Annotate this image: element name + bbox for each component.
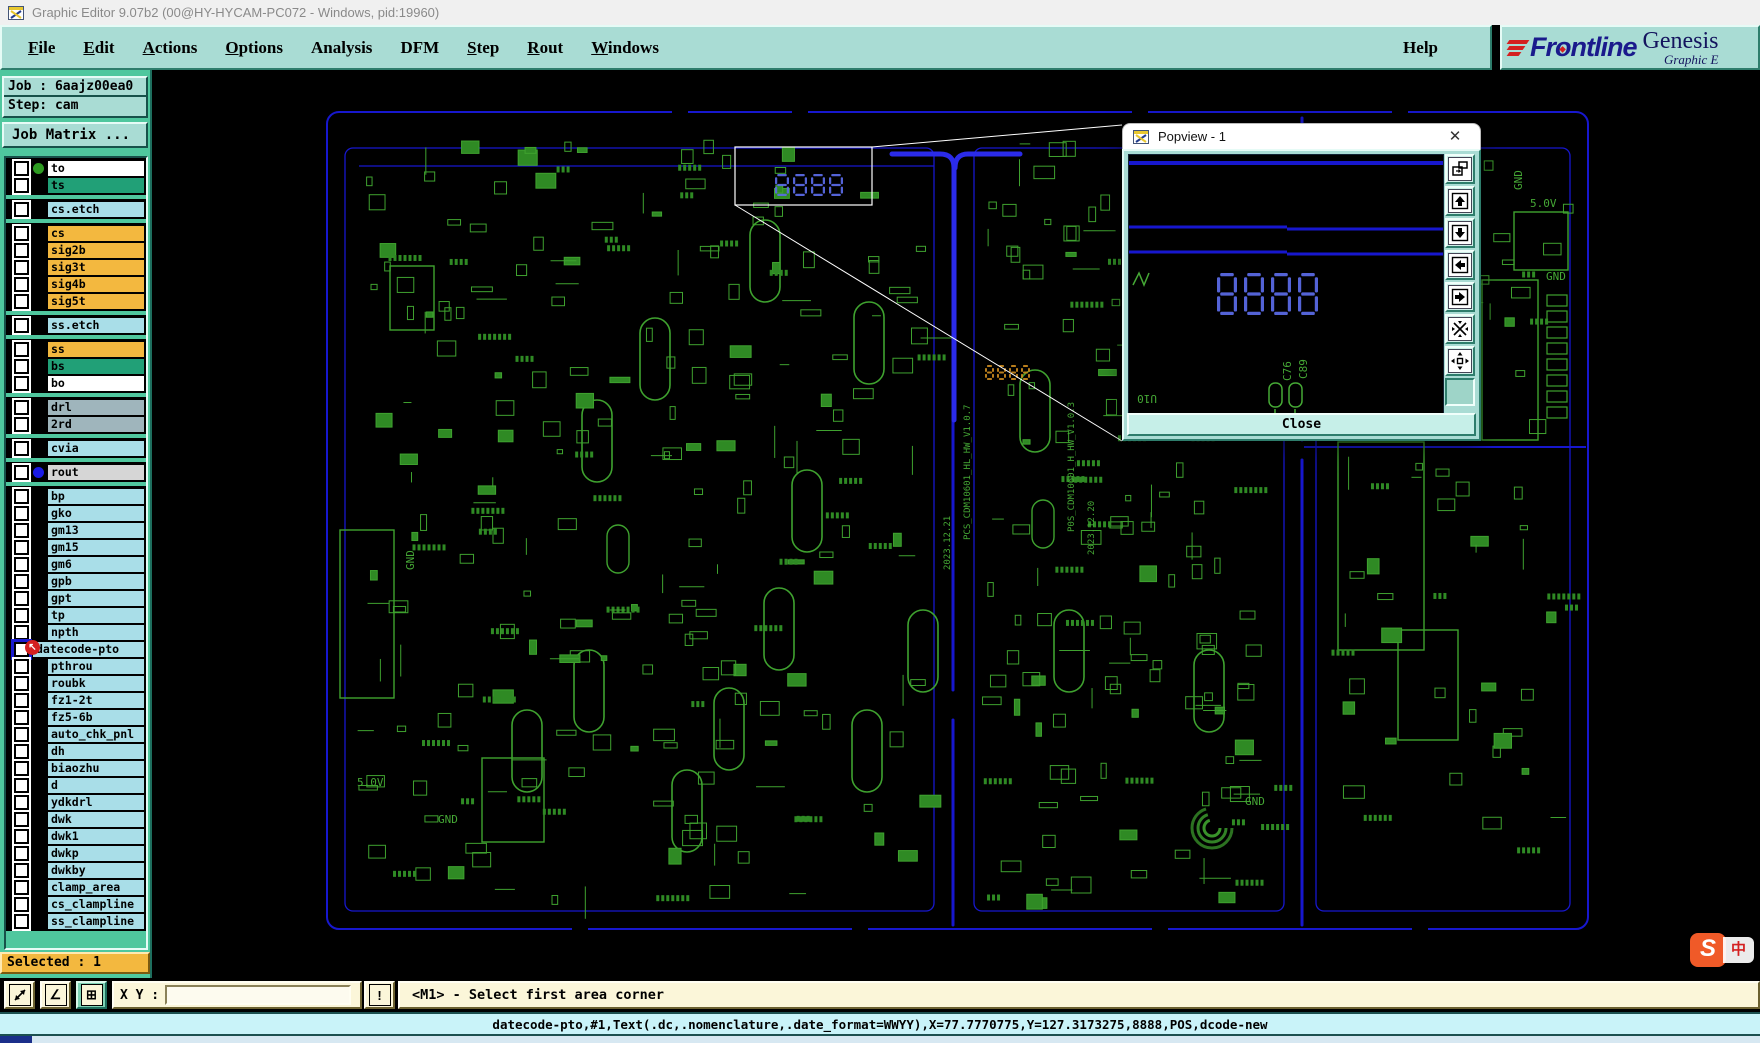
move-left-icon bbox=[1448, 253, 1472, 277]
layer-name: cs bbox=[48, 226, 144, 241]
bottom-toolbar: ∠ ⊞ X Y : ! <M1> - Select first area cor… bbox=[0, 978, 1760, 1012]
layer-name: dwkby bbox=[48, 863, 144, 878]
layer-visibility-checkbox[interactable] bbox=[14, 359, 29, 374]
layer-row-sig3t[interactable]: sig3t bbox=[8, 259, 144, 275]
layer-visibility-checkbox[interactable] bbox=[14, 659, 29, 674]
layer-visibility-checkbox[interactable] bbox=[14, 260, 29, 275]
layer-name: bp bbox=[48, 489, 144, 504]
layer-row-gko[interactable]: gko bbox=[8, 505, 144, 521]
silkscreen-label: GND bbox=[404, 550, 417, 570]
layer-visibility-checkbox[interactable] bbox=[14, 608, 29, 623]
job-panel: Job : 6aajz00ea0 Step: cam bbox=[2, 76, 148, 118]
selection-highlight bbox=[735, 125, 1122, 441]
silkscreen-label: GND bbox=[438, 813, 458, 826]
layer-name: ss_clampline bbox=[48, 914, 144, 929]
popview-toolbar-spacer bbox=[1445, 378, 1475, 406]
layer-name: gm15 bbox=[48, 540, 144, 555]
layer-visibility-checkbox[interactable] bbox=[14, 591, 29, 606]
layer-visibility-checkbox[interactable] bbox=[14, 489, 29, 504]
layer-row-bs[interactable]: bs bbox=[8, 358, 144, 374]
layer-group: bpgkogm13gm15gm6gpbgpttpnpth↖datecode-pt… bbox=[6, 486, 146, 931]
layer-name: fz1-2t bbox=[48, 693, 144, 708]
layer-list: totscs.etchcssig2bsig3tsig4bsig5tss.etch… bbox=[4, 156, 148, 950]
layer-visibility-checkbox[interactable] bbox=[14, 226, 29, 241]
app-icon bbox=[8, 6, 24, 20]
layer-name: bo bbox=[48, 376, 144, 391]
layer-name: sig3t bbox=[48, 260, 144, 275]
status-prompt-panel: <M1> - Select first area corner bbox=[398, 981, 1760, 1009]
layer-visibility-checkbox[interactable] bbox=[14, 294, 29, 309]
layer-visibility-checkbox[interactable] bbox=[14, 178, 29, 193]
layer-visibility-checkbox[interactable] bbox=[14, 557, 29, 572]
layer-name: rout bbox=[48, 465, 144, 480]
pcb-canvas[interactable]: 5.0VGNDGNDGNDGND5.0VGND2023.12.21PCS_CDM… bbox=[152, 70, 1760, 978]
brand-company: Fro◆ntline bbox=[1530, 32, 1637, 63]
layer-visibility-checkbox[interactable] bbox=[14, 376, 29, 391]
command-result-bar: datecode-pto,#1,Text(.dc,.nomenclature,.… bbox=[0, 1012, 1760, 1036]
layer-name: ts bbox=[48, 178, 144, 193]
fit-view-icon bbox=[1448, 317, 1472, 341]
layer-name: sig4b bbox=[48, 277, 144, 292]
new-popview-button[interactable] bbox=[1445, 154, 1475, 184]
ime-indicator[interactable]: S 中 bbox=[1690, 933, 1754, 967]
layer-visibility-checkbox[interactable] bbox=[14, 676, 29, 691]
move-right-icon bbox=[1448, 285, 1472, 309]
menu-rout[interactable]: Rout bbox=[515, 34, 575, 62]
layer-visibility-checkbox[interactable] bbox=[14, 761, 29, 776]
pan-view-icon bbox=[1448, 349, 1472, 373]
layer-row-bo[interactable]: bo bbox=[8, 375, 144, 391]
popview-dialog: Popview - 1 ✕ C89C76U10 Close bbox=[1122, 123, 1481, 441]
layer-name: bs bbox=[48, 359, 144, 374]
layer-visibility-checkbox[interactable] bbox=[14, 880, 29, 895]
layer-visibility-checkbox[interactable] bbox=[14, 744, 29, 759]
layer-name: gko bbox=[48, 506, 144, 521]
layer-name: tp bbox=[48, 608, 144, 623]
fit-view-button[interactable] bbox=[1445, 314, 1475, 344]
command-result-text: datecode-pto,#1,Text(.dc,.nomenclature,.… bbox=[492, 1017, 1267, 1032]
new-popview-icon bbox=[1448, 157, 1472, 181]
layer-name: cs.etch bbox=[48, 202, 144, 217]
layer-visibility-checkbox[interactable] bbox=[14, 342, 29, 357]
layer-row-npth[interactable]: npth bbox=[8, 624, 144, 640]
frontline-speedlines-icon bbox=[1508, 38, 1528, 58]
layer-row-d[interactable]: d bbox=[8, 777, 144, 793]
layer-row-gm6[interactable]: gm6 bbox=[8, 556, 144, 572]
sogou-icon: S bbox=[1690, 933, 1726, 967]
title-bar: Graphic Editor 9.07b2 (00@HY-HYCAM-PC072… bbox=[0, 0, 1760, 25]
layer-visibility-checkbox[interactable] bbox=[14, 318, 29, 333]
layer-row-dh[interactable]: dh bbox=[8, 743, 144, 759]
menu-file[interactable]: File bbox=[16, 34, 67, 62]
active-layer-cursor-icon: ↖ bbox=[25, 640, 40, 655]
popview-silk-text: C76 bbox=[1281, 361, 1294, 381]
selected-count-badge: Selected : 1 bbox=[0, 952, 150, 974]
move-up-button[interactable] bbox=[1445, 186, 1475, 216]
ime-language-badge: 中 bbox=[1723, 937, 1754, 963]
layer-row-cs_clampline[interactable]: cs_clampline bbox=[8, 896, 144, 912]
menu-actions[interactable]: Actions bbox=[131, 34, 210, 62]
layer-row-dwkp[interactable]: dwkp bbox=[8, 845, 144, 861]
panel-version-text: 2023.12.20 bbox=[1087, 501, 1097, 555]
layer-visibility-checkbox[interactable] bbox=[14, 778, 29, 793]
popview-silk-text: C89 bbox=[1297, 359, 1310, 379]
layer-name: sig5t bbox=[48, 294, 144, 309]
layer-visibility-checkbox[interactable] bbox=[14, 506, 29, 521]
layer-row-dwk1[interactable]: dwk1 bbox=[8, 828, 144, 844]
layer-visibility-checkbox[interactable] bbox=[14, 277, 29, 292]
silkscreen-label: GND bbox=[1546, 270, 1566, 283]
layer-row-dwkby[interactable]: dwkby bbox=[8, 862, 144, 878]
layer-row-sig4b[interactable]: sig4b bbox=[8, 276, 144, 292]
layer-name: clamp_area bbox=[48, 880, 144, 895]
layer-name: gpt bbox=[48, 591, 144, 606]
diagonal-arrow-icon bbox=[9, 984, 31, 1006]
layer-visibility-checkbox[interactable] bbox=[14, 914, 29, 929]
layer-visibility-checkbox[interactable] bbox=[14, 400, 29, 415]
layer-visibility-checkbox[interactable] bbox=[14, 710, 29, 725]
angle-tool-button[interactable]: ∠ bbox=[40, 981, 71, 1009]
grid-icon: ⊞ bbox=[81, 984, 103, 1006]
sidebar: Job : 6aajz00ea0 Step: cam Job Matrix ..… bbox=[0, 70, 152, 978]
layer-row-cs.etch[interactable]: cs.etch bbox=[8, 201, 144, 217]
layer-color-dot bbox=[33, 467, 44, 478]
layer-name: gm13 bbox=[48, 523, 144, 538]
layer-visibility-checkbox[interactable] bbox=[14, 540, 29, 555]
layer-visibility-checkbox[interactable] bbox=[14, 202, 29, 217]
bottom-edge-strip bbox=[0, 1036, 1760, 1043]
layer-row-rout[interactable]: rout bbox=[8, 464, 144, 480]
layer-group: cvia bbox=[6, 438, 146, 458]
job-matrix-button[interactable]: Job Matrix ... bbox=[2, 122, 148, 148]
layer-group: cssig2bsig3tsig4bsig5t bbox=[6, 223, 146, 311]
layer-name: gpb bbox=[48, 574, 144, 589]
menu-windows[interactable]: Windows bbox=[579, 34, 671, 62]
menu-step[interactable]: Step bbox=[455, 34, 511, 62]
layer-visibility-checkbox[interactable] bbox=[14, 829, 29, 844]
layer-row-cvia[interactable]: cvia bbox=[8, 440, 144, 456]
layer-visibility-checkbox[interactable] bbox=[14, 897, 29, 912]
layer-row-biaozhu[interactable]: biaozhu bbox=[8, 760, 144, 776]
popview-title-bar[interactable]: Popview - 1 ✕ bbox=[1122, 123, 1481, 149]
layer-row-pthrou[interactable]: pthrou bbox=[8, 658, 144, 674]
layer-visibility-checkbox[interactable] bbox=[14, 574, 29, 589]
popview-close-button[interactable]: Close bbox=[1127, 413, 1476, 436]
popview-toolbar bbox=[1444, 154, 1477, 413]
brand-product: Genesis bbox=[1643, 28, 1719, 54]
brand-panel: Fro◆ntline Genesis Graphic E bbox=[1500, 25, 1760, 70]
pan-view-button[interactable] bbox=[1445, 346, 1475, 376]
menu-bar: FileEditActionsOptionsAnalysisDFMStepRou… bbox=[0, 25, 1492, 70]
layer-name: to bbox=[48, 161, 144, 176]
panel-version-text: PCS_CDM10601_HL_HW_V1.0.7 bbox=[963, 405, 973, 540]
layer-row-sig5t[interactable]: sig5t bbox=[8, 293, 144, 309]
layer-name: cvia bbox=[48, 441, 144, 456]
silkscreen-label: GND bbox=[1512, 170, 1525, 190]
layer-visibility-checkbox[interactable] bbox=[14, 417, 29, 432]
menu-help[interactable]: Help bbox=[1391, 34, 1450, 62]
popview-body: C89C76U10 Close bbox=[1122, 149, 1481, 441]
layer-row-cs[interactable]: cs bbox=[8, 225, 144, 241]
seven-segment-display bbox=[985, 365, 1030, 380]
silkscreen-label: 5.0V bbox=[357, 776, 384, 789]
seven-segment-display bbox=[1217, 273, 1318, 315]
move-right-button[interactable] bbox=[1445, 282, 1475, 312]
layer-visibility-checkbox[interactable] bbox=[14, 465, 29, 480]
measure-tool-button[interactable] bbox=[4, 981, 35, 1009]
layer-row-gm13[interactable]: gm13 bbox=[8, 522, 144, 538]
xy-input[interactable] bbox=[165, 985, 351, 1005]
move-down-icon bbox=[1448, 221, 1472, 245]
popview-drawing: C89C76U10 bbox=[1129, 155, 1443, 414]
layer-name: ss bbox=[48, 342, 144, 357]
layer-row-ss_clampline[interactable]: ss_clampline bbox=[8, 913, 144, 929]
layer-visibility-checkbox[interactable] bbox=[14, 795, 29, 810]
layer-row-ss[interactable]: ss bbox=[8, 341, 144, 357]
layer-row-sig2b[interactable]: sig2b bbox=[8, 242, 144, 258]
layer-row-gpb[interactable]: gpb bbox=[8, 573, 144, 589]
layer-group: ss.etch bbox=[6, 315, 146, 335]
step-label: Step: cam bbox=[4, 97, 146, 114]
layer-name: auto_chk_pnl bbox=[48, 727, 144, 742]
layer-name: gm6 bbox=[48, 557, 144, 572]
layer-name: npth bbox=[48, 625, 144, 640]
grid-toggle-button[interactable]: ⊞ bbox=[76, 981, 107, 1009]
layer-visibility-checkbox[interactable] bbox=[14, 243, 29, 258]
layer-name: drl bbox=[48, 400, 144, 415]
layer-row-auto_chk_pnl[interactable]: auto_chk_pnl bbox=[8, 726, 144, 742]
layer-name: dwkp bbox=[48, 846, 144, 861]
layer-group: rout bbox=[6, 462, 146, 482]
menu-dfm[interactable]: DFM bbox=[388, 34, 451, 62]
layer-name: dwk1 bbox=[48, 829, 144, 844]
layer-row-gm15[interactable]: gm15 bbox=[8, 539, 144, 555]
layer-name: 2rd bbox=[48, 417, 144, 432]
layer-group: ssbsbo bbox=[6, 339, 146, 393]
layer-name: ss.etch bbox=[48, 318, 144, 333]
popview-silk-text: U10 bbox=[1137, 392, 1157, 405]
popview-title: Popview - 1 bbox=[1158, 129, 1431, 144]
move-down-button[interactable] bbox=[1445, 218, 1475, 248]
xy-label: X Y : bbox=[120, 988, 159, 1003]
layer-color-dot bbox=[33, 163, 44, 174]
layer-visibility-checkbox[interactable] bbox=[14, 161, 29, 176]
silkscreen-label: GND bbox=[1245, 795, 1265, 808]
layer-row-roubk[interactable]: roubk bbox=[8, 675, 144, 691]
layer-row-datecode-pto[interactable]: ↖datecode-pto bbox=[8, 641, 144, 657]
panel-version-text: P0S_CDM10601_H_HW_V1.0.3 bbox=[1067, 402, 1077, 532]
layer-visibility-checkbox[interactable] bbox=[14, 812, 29, 827]
layer-row-clamp_area[interactable]: clamp_area bbox=[8, 879, 144, 895]
layer-name: ydkdrl bbox=[48, 795, 144, 810]
coordinate-panel: X Y : bbox=[112, 981, 362, 1009]
layer-name: d bbox=[48, 778, 144, 793]
move-up-icon bbox=[1448, 189, 1472, 213]
layer-name: sig2b bbox=[48, 243, 144, 258]
layer-visibility-checkbox[interactable] bbox=[14, 441, 29, 456]
layer-row-drl[interactable]: drl bbox=[8, 399, 144, 415]
layer-row-ss.etch[interactable]: ss.etch bbox=[8, 317, 144, 333]
angle-icon: ∠ bbox=[45, 984, 67, 1006]
layer-row-tp[interactable]: tp bbox=[8, 607, 144, 623]
panel-version-text: 2023.12.21 bbox=[943, 516, 953, 570]
layer-group: drl2rd bbox=[6, 397, 146, 434]
layer-group: cs.etch bbox=[6, 199, 146, 219]
move-left-button[interactable] bbox=[1445, 250, 1475, 280]
layer-name: roubk bbox=[48, 676, 144, 691]
layer-name: dh bbox=[48, 744, 144, 759]
exclamation-icon: ! bbox=[369, 984, 391, 1006]
layer-visibility-checkbox[interactable] bbox=[14, 727, 29, 742]
layer-row-2rd[interactable]: 2rd bbox=[8, 416, 144, 432]
layer-visibility-checkbox[interactable] bbox=[14, 693, 29, 708]
menu-options[interactable]: Options bbox=[213, 34, 295, 62]
application-window: Graphic Editor 9.07b2 (00@HY-HYCAM-PC072… bbox=[0, 0, 1760, 1043]
brand-subtitle: Graphic E bbox=[1643, 53, 1719, 66]
popview-app-icon bbox=[1133, 130, 1149, 144]
layer-visibility-checkbox[interactable] bbox=[14, 625, 29, 640]
status-prompt: <M1> - Select first area corner bbox=[412, 987, 664, 1003]
layer-group: tots bbox=[6, 158, 146, 195]
layer-name: fz5-6b bbox=[48, 710, 144, 725]
popview-canvas[interactable]: C89C76U10 bbox=[1128, 154, 1444, 415]
layer-visibility-checkbox[interactable] bbox=[14, 846, 29, 861]
layer-row-fz5-6b[interactable]: fz5-6b bbox=[8, 709, 144, 725]
layer-row-ydkdrl[interactable]: ydkdrl bbox=[8, 794, 144, 810]
menu-analysis[interactable]: Analysis bbox=[299, 34, 384, 62]
layer-name: datecode-pto bbox=[33, 642, 144, 657]
menu-edit[interactable]: Edit bbox=[71, 34, 126, 62]
window-title: Graphic Editor 9.07b2 (00@HY-HYCAM-PC072… bbox=[32, 5, 439, 20]
layer-name: cs_clampline bbox=[48, 897, 144, 912]
layer-name: biaozhu bbox=[48, 761, 144, 776]
layer-visibility-checkbox[interactable] bbox=[14, 523, 29, 538]
popview-close-x-button[interactable]: ✕ bbox=[1440, 127, 1470, 147]
layer-row-gpt[interactable]: gpt bbox=[8, 590, 144, 606]
layer-row-fz1-2t[interactable]: fz1-2t bbox=[8, 692, 144, 708]
layer-name: pthrou bbox=[48, 659, 144, 674]
layer-name: dwk bbox=[48, 812, 144, 827]
pcb-drawing: 5.0VGNDGNDGNDGND5.0VGND2023.12.21PCS_CDM… bbox=[152, 70, 1760, 978]
layer-row-to[interactable]: to bbox=[8, 160, 144, 176]
alert-button[interactable]: ! bbox=[364, 981, 395, 1009]
layer-visibility-checkbox[interactable] bbox=[14, 863, 29, 878]
taskbar-fragment bbox=[0, 1036, 32, 1043]
layer-row-ts[interactable]: ts bbox=[8, 177, 144, 193]
layer-row-bp[interactable]: bp bbox=[8, 488, 144, 504]
layer-row-dwk[interactable]: dwk bbox=[8, 811, 144, 827]
job-label: Job : 6aajz00ea0 bbox=[4, 78, 146, 97]
silkscreen-label: 5.0V bbox=[1530, 197, 1557, 210]
